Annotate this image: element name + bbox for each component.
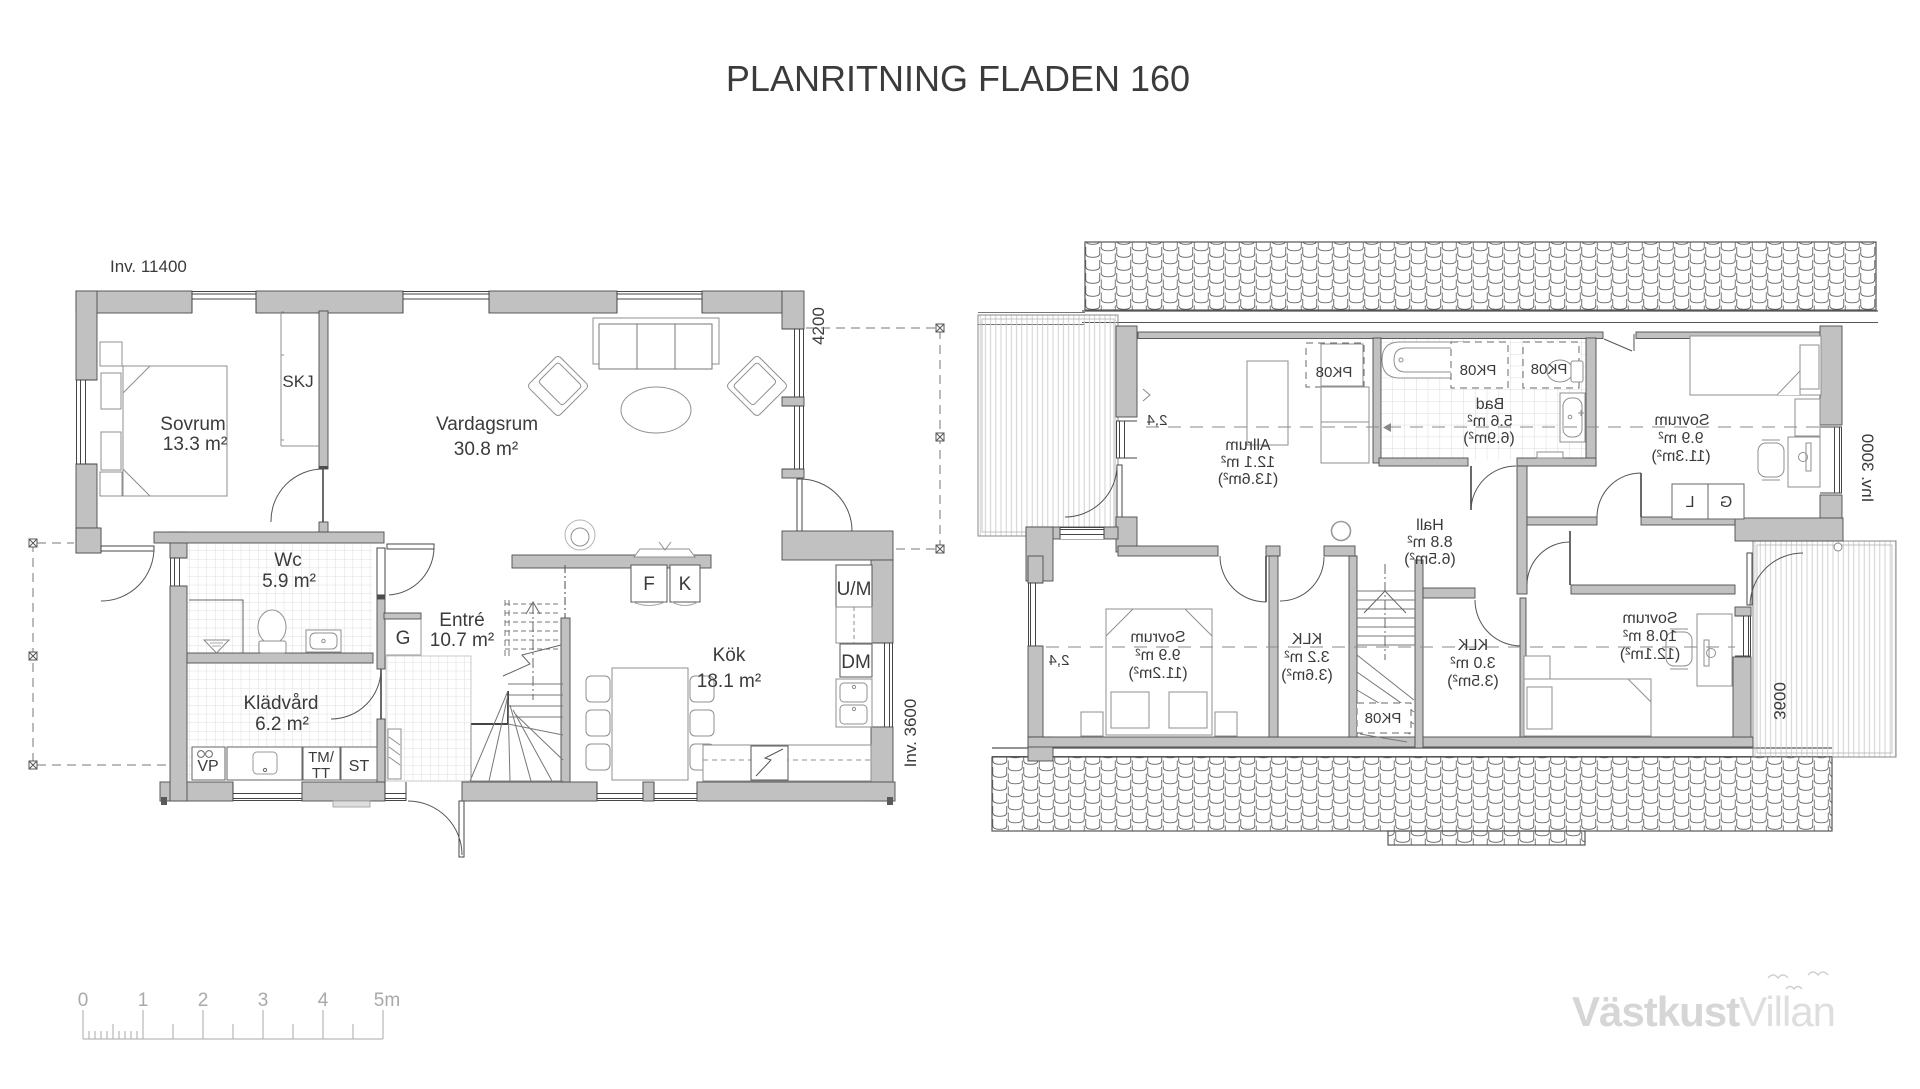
svg-text:G: G [396, 628, 411, 649]
svg-text:2,4: 2,4 [1049, 652, 1070, 669]
svg-text:PK08: PK08 [1531, 361, 1568, 378]
svg-text:KLK: KLK [1292, 631, 1323, 648]
svg-text:Sovrum: Sovrum [1622, 610, 1677, 627]
svg-text:Hall: Hall [1416, 517, 1444, 534]
svg-text:10.8 m²: 10.8 m² [1622, 628, 1677, 645]
svg-text:K: K [679, 574, 692, 595]
svg-text:KLK: KLK [1458, 637, 1489, 654]
svg-text:Vardagsrum: Vardagsrum [436, 414, 538, 435]
svg-text:6.2 m²: 6.2 m² [255, 714, 309, 735]
svg-text:8.8 m²: 8.8 m² [1407, 534, 1453, 551]
svg-text:Inv. 3000: Inv. 3000 [1858, 434, 1877, 503]
svg-text:G: G [1720, 494, 1732, 511]
svg-text:Sovrum: Sovrum [1130, 629, 1185, 646]
svg-text:(3.6m²): (3.6m²) [1281, 667, 1333, 684]
svg-text:U/M: U/M [837, 579, 872, 600]
svg-text:Klädvård: Klädvård [244, 693, 319, 714]
svg-text:30.8 m²: 30.8 m² [454, 439, 518, 460]
svg-text:(3.5m²): (3.5m²) [1447, 673, 1499, 690]
svg-text:(13.6m²): (13.6m²) [1218, 471, 1278, 488]
svg-text:2: 2 [198, 990, 209, 1011]
svg-text:Bad: Bad [1476, 396, 1504, 413]
svg-text:Wc: Wc [274, 550, 301, 571]
svg-text:0: 0 [78, 990, 89, 1011]
svg-text:10.7 m²: 10.7 m² [430, 630, 494, 651]
svg-text:Allrum: Allrum [1225, 437, 1270, 454]
svg-text:Inv. 11400: Inv. 11400 [110, 257, 187, 276]
svg-text:Entré: Entré [439, 610, 484, 631]
svg-text:9.9 m²: 9.9 m² [1135, 647, 1181, 664]
svg-text:1: 1 [138, 990, 149, 1011]
svg-text:TT: TT [312, 765, 330, 782]
svg-text:(11.3m²): (11.3m²) [1651, 448, 1710, 465]
svg-text:18.1 m²: 18.1 m² [697, 671, 761, 692]
svg-text:(11.2m²): (11.2m²) [1128, 665, 1187, 682]
svg-text:3.2 m²: 3.2 m² [1284, 649, 1330, 666]
svg-text:SKJ: SKJ [282, 372, 313, 391]
svg-text:13.3 m²: 13.3 m² [163, 434, 227, 455]
svg-text:VP: VP [197, 758, 218, 775]
svg-text:(6.5m²): (6.5m²) [1404, 551, 1456, 568]
svg-text:4: 4 [318, 990, 329, 1011]
svg-text:3600: 3600 [1770, 682, 1789, 720]
svg-text:PK08: PK08 [1460, 362, 1497, 379]
svg-text:Inv. 3600: Inv. 3600 [901, 699, 920, 768]
svg-text:3: 3 [258, 990, 269, 1011]
svg-text:5.9 m²: 5.9 m² [262, 571, 316, 592]
svg-text:Kök: Kök [713, 645, 746, 666]
svg-text:PLANRITNING FLADEN 160: PLANRITNING FLADEN 160 [726, 58, 1190, 99]
svg-text:F: F [643, 574, 655, 595]
svg-text:DM: DM [841, 652, 871, 673]
svg-text:VästkustVillan: VästkustVillan [1572, 988, 1835, 1035]
svg-text:Sovrum: Sovrum [1654, 412, 1709, 429]
svg-text:5m: 5m [374, 990, 400, 1011]
svg-text:ST: ST [349, 758, 370, 775]
svg-text:9.9 m²: 9.9 m² [1658, 430, 1704, 447]
svg-text:TM/: TM/ [308, 749, 335, 766]
svg-text:Sovrum: Sovrum [160, 414, 225, 435]
svg-text:12.1 m²: 12.1 m² [1220, 454, 1275, 471]
svg-text:PK08: PK08 [1316, 364, 1353, 381]
svg-text:(6.9m²): (6.9m²) [1463, 430, 1515, 447]
svg-text:(12.1m²): (12.1m²) [1620, 646, 1680, 663]
svg-text:PK08: PK08 [1365, 710, 1402, 727]
svg-text:4200: 4200 [809, 307, 828, 345]
svg-text:2,4: 2,4 [1147, 412, 1168, 429]
svg-text:5.6 m²: 5.6 m² [1467, 413, 1513, 430]
svg-text:3.0 m²: 3.0 m² [1450, 655, 1496, 672]
svg-text:L: L [1685, 494, 1694, 511]
